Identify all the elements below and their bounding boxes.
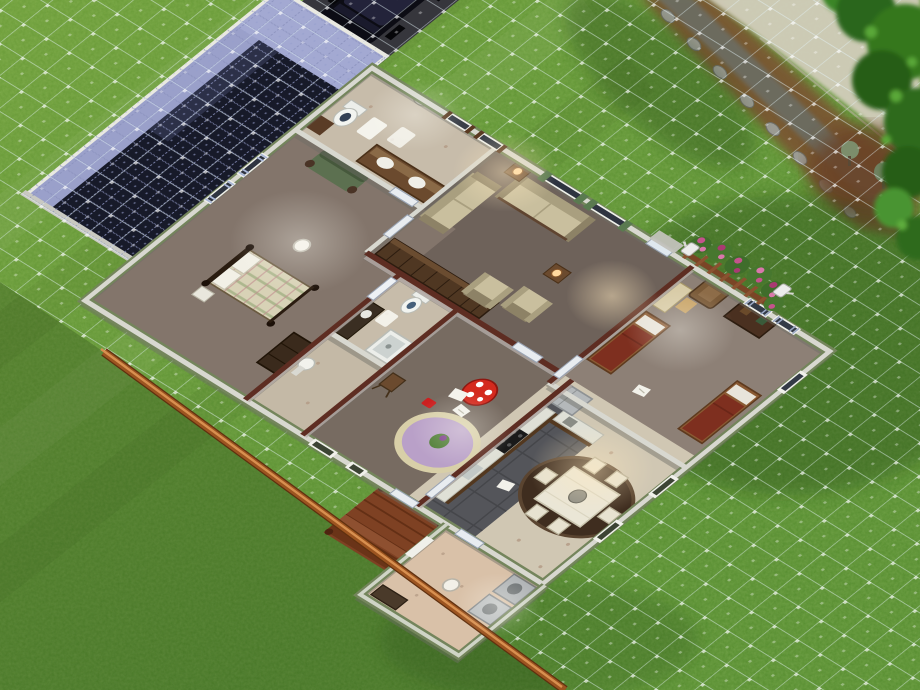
scene-canvas [0, 0, 920, 690]
game-viewport [0, 0, 920, 690]
